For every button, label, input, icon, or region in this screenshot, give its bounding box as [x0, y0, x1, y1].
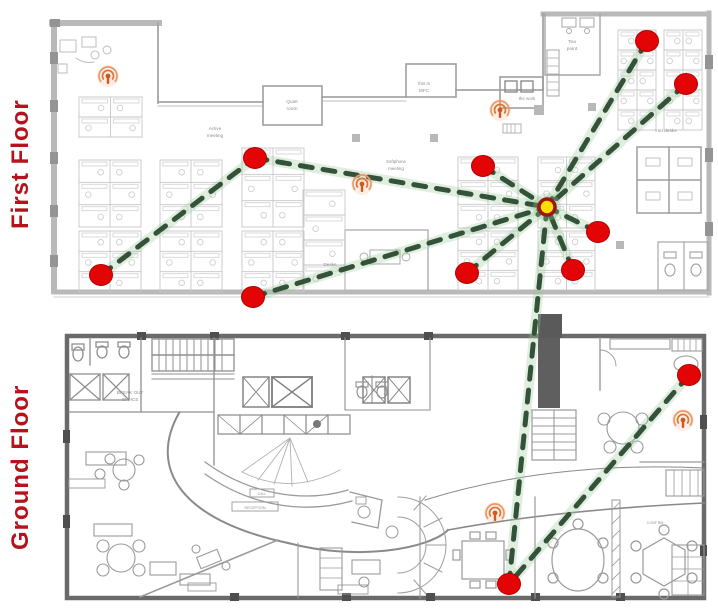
plan-text: this is [418, 81, 430, 86]
plan-text: CALL [258, 492, 267, 496]
ground-floor-plan [63, 314, 707, 601]
plan-svg: ActivemeetingQuietroomthis isMFCthe work… [0, 0, 718, 615]
plan-text: Quiet [286, 99, 298, 105]
plan-text: the work [519, 96, 536, 101]
plan-text: Hot desks [655, 128, 677, 134]
plan-text: room [287, 106, 298, 112]
sensor-node [675, 74, 698, 95]
sensor-node [636, 31, 659, 52]
plan-text: MFC [419, 88, 430, 93]
wifi-beacon-icon [97, 65, 119, 87]
desk-cluster [160, 231, 222, 292]
sensor-node [498, 574, 521, 595]
wifi-beacon-icon [489, 99, 511, 121]
plan-text: CONF RM [647, 521, 664, 525]
hub-node [533, 193, 561, 221]
plan-text: point [567, 46, 578, 52]
sensor-node [456, 263, 479, 284]
mesh-links [101, 41, 689, 584]
plan-text: Tea [568, 39, 576, 45]
wifi-beacon-icon [351, 173, 373, 195]
sensor-node [587, 222, 610, 243]
sensor-node [244, 148, 267, 169]
sensor-node [678, 365, 701, 386]
plan-text: OFFICE [122, 397, 139, 402]
sensor-node [90, 265, 113, 286]
desk-cluster [79, 231, 141, 292]
plan-text: Active [209, 126, 222, 131]
wifi-beacon-icon [672, 409, 694, 431]
sensor-node [472, 156, 495, 177]
sensor-node [562, 260, 585, 281]
wifi-beacon-icon [484, 502, 506, 524]
floorplan-network-diagram: First Floor Ground Floor [0, 0, 718, 615]
desk-cluster [79, 160, 141, 227]
sensor-node [242, 287, 265, 308]
plan-text: meeting [388, 166, 404, 171]
plan-labels: ActivemeetingQuietroomthis isMFCthe work… [117, 39, 678, 525]
desk-cluster [79, 97, 142, 137]
plan-text: Softphone [386, 159, 407, 164]
plan-text: RECEPTION [245, 506, 266, 510]
plan-text: BREAK OUT [117, 390, 144, 395]
plan-text: meeting [207, 133, 224, 138]
